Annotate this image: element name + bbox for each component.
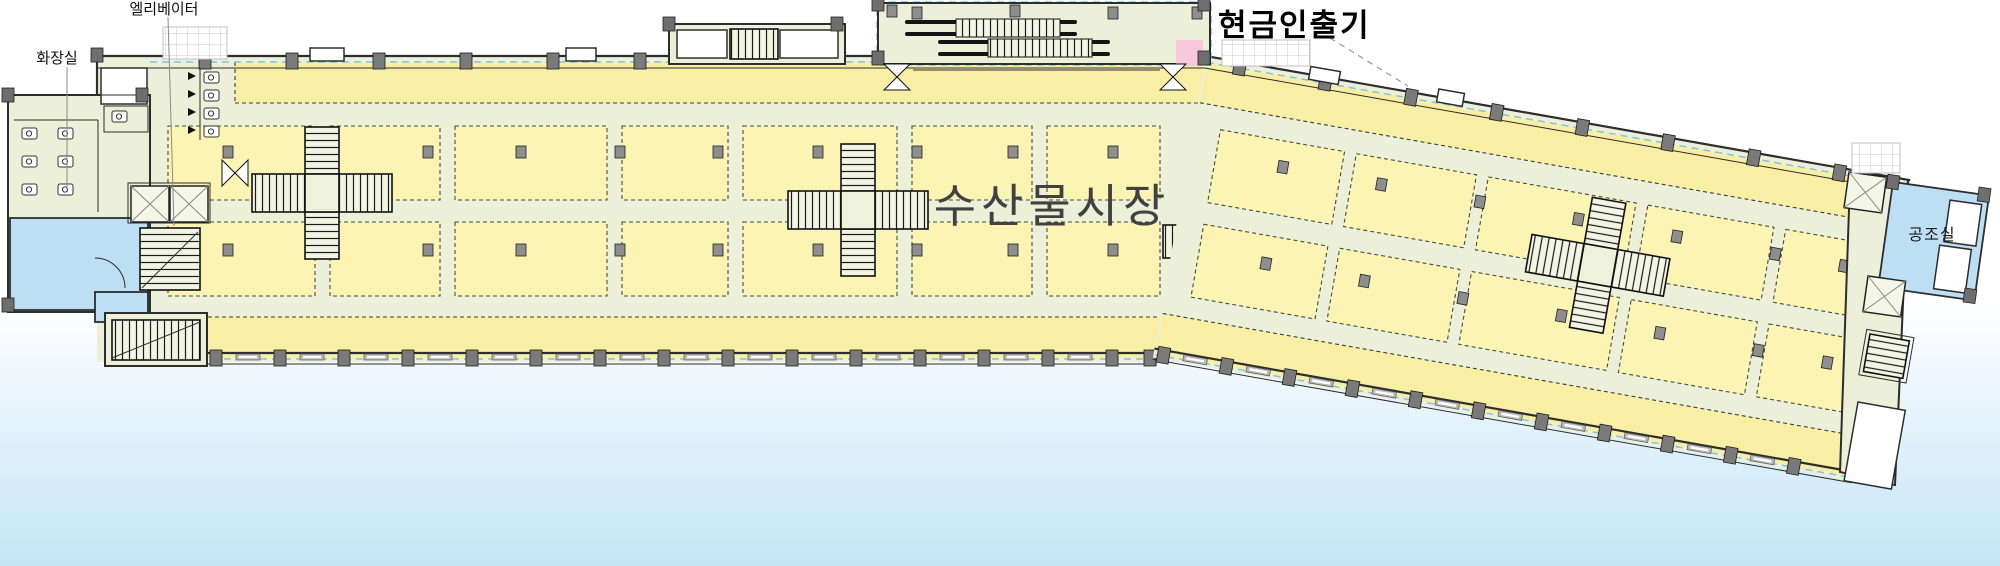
hvac-room-label: 공조실 [1908, 226, 1955, 244]
staircase-annex [730, 29, 778, 59]
atm-leader-line [1330, 38, 1408, 86]
entrance-canopy [310, 48, 344, 61]
atm-label: 현금인출기 [1218, 8, 1371, 43]
floor-plan: 엘리베이터 화장실 현금인출기 수산물시장 공조실 [0, 0, 2000, 566]
market-hall-right-wing [1152, 48, 1911, 485]
floor-plan-page: 엘리베이터 화장실 현금인출기 수산물시장 공조실 [0, 0, 2000, 566]
market-title: 수산물시장 [934, 180, 1171, 232]
canopy-grid-bend [1222, 40, 1310, 66]
canopy-grid-east [1852, 143, 1900, 173]
elevator-label: 엘리베이터 [129, 1, 198, 18]
restroom-label: 화장실 [36, 50, 77, 67]
east-core [1840, 172, 1991, 489]
entrance-canopy [566, 48, 596, 61]
north-stair-annex [663, 17, 845, 64]
staircase-southwest [105, 313, 207, 366]
canopy-grid-northwest [163, 27, 227, 59]
elevator-core [128, 183, 210, 290]
